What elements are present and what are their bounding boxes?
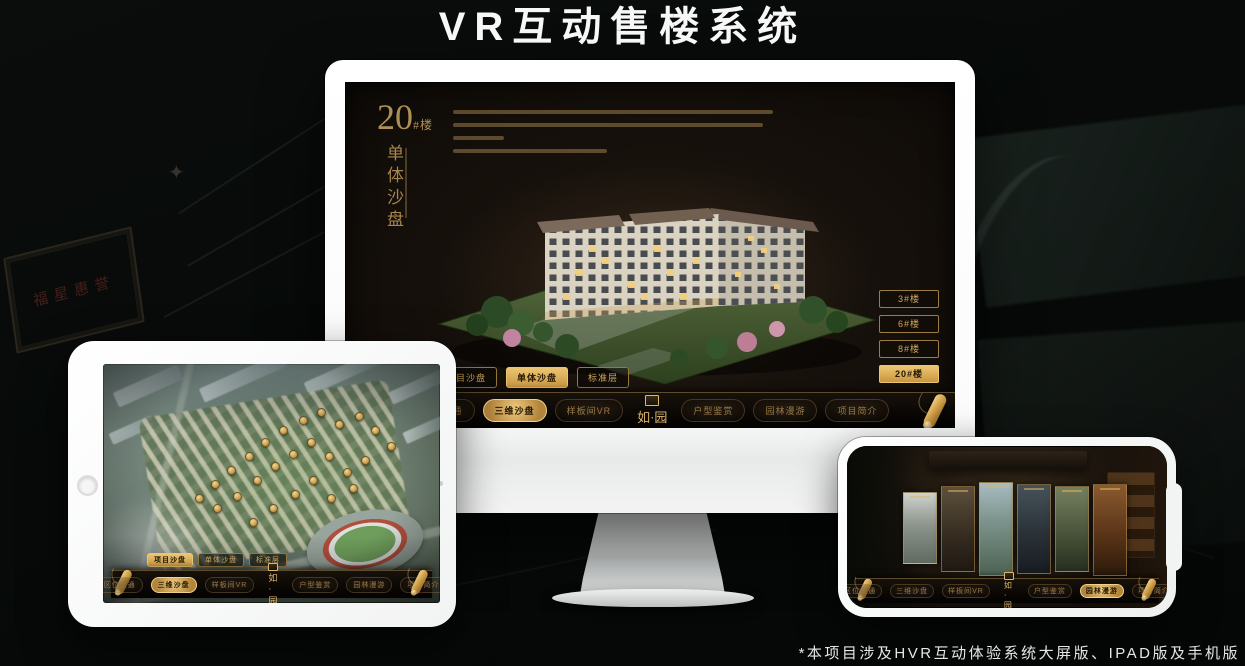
monitor-tab-2[interactable]: 单体沙盘	[506, 367, 568, 388]
logo-seal-icon	[268, 563, 278, 571]
phone-nav-bar: 区位交通三维沙盘样板间VR如·园户型鉴赏园林漫游项目简介	[855, 578, 1159, 603]
block-number: 20#楼	[377, 98, 433, 144]
nav-item-5[interactable]: 园林漫游	[753, 399, 817, 422]
logo-text: 如·园	[1004, 580, 1014, 609]
building-button-2[interactable]: 6#楼	[879, 315, 939, 333]
phone-notch	[1166, 483, 1182, 571]
scroll-icon[interactable]	[922, 392, 949, 428]
nav-item-1[interactable]: 区位交通	[103, 577, 143, 593]
monitor-base	[552, 589, 754, 607]
nav-item-4[interactable]: 户型鉴赏	[1028, 584, 1072, 598]
nav-items: 区位交通三维沙盘样板间VR如·园户型鉴赏园林漫游项目简介	[103, 563, 440, 604]
nav-item-4[interactable]: 户型鉴赏	[292, 577, 338, 593]
logo-text: 如·园	[637, 407, 667, 426]
logo-seal-icon	[645, 395, 659, 406]
building-button-3[interactable]: 8#楼	[879, 340, 939, 358]
nav-item-5[interactable]: 园林漫游	[1080, 584, 1124, 598]
bg-plaque-text: 福星惠誉	[32, 269, 116, 310]
nav-items: 区位交通三维沙盘样板间VR如·园户型鉴赏园林漫游项目简介	[411, 395, 890, 426]
nav-item-2[interactable]: 三维沙盘	[890, 584, 934, 598]
stage: ✦ 福星惠誉 VR互动售楼系统 *本项目涉及HVR互动体验系统大屏版、IPAD版…	[0, 0, 1245, 666]
nav-item-3[interactable]: 样板间VR	[942, 584, 990, 598]
monitor-tab-3[interactable]: 标准层	[577, 367, 629, 388]
nav-item-1[interactable]: 区位交通	[847, 584, 882, 598]
block-subtitle: 单体沙盘	[381, 144, 406, 232]
subtitle-rule	[405, 148, 407, 218]
footnote: *本项目涉及HVR互动体验系统大屏版、IPAD版及手机版	[799, 642, 1240, 663]
nav-item-6[interactable]: 项目简介	[825, 399, 889, 422]
bg-compass-icon: ✦	[168, 160, 185, 185]
page-title: VR互动售楼系统	[0, 0, 1245, 56]
gallery-panel[interactable]	[1017, 484, 1051, 574]
nav-items: 区位交通三维沙盘样板间VR如·园户型鉴赏园林漫游项目简介	[847, 572, 1167, 609]
tablet-nav-bar: 区位交通三维沙盘样板间VR如·园户型鉴赏园林漫游项目简介	[111, 570, 432, 598]
building-button-4[interactable]: 20#楼	[879, 365, 939, 383]
building-3d-render[interactable]	[417, 152, 887, 387]
phone-screen: 区位交通三维沙盘样板间VR如·园户型鉴赏园林漫游项目简介	[847, 446, 1167, 608]
logo-seal-icon	[1004, 572, 1014, 580]
nav-item-4[interactable]: 户型鉴赏	[681, 399, 745, 422]
building-button-1[interactable]: 3#楼	[879, 290, 939, 308]
nav-item-3[interactable]: 样板间VR	[555, 399, 624, 422]
gallery-panel[interactable]	[979, 482, 1013, 576]
monitor-tab-group: 项目沙盘单体沙盘标准层	[435, 367, 638, 388]
gallery-panel[interactable]	[1055, 486, 1089, 572]
monitor-stand	[580, 511, 725, 595]
bg-plaque: 福星惠誉	[3, 226, 145, 354]
ruyuan-logo[interactable]: 如·园	[268, 563, 278, 604]
nav-item-5[interactable]: 园林漫游	[346, 577, 392, 593]
tablet-device: 项目沙盘单体沙盘标准层 区位交通三维沙盘样板间VR如·园户型鉴赏园林漫游项目简介	[68, 341, 456, 627]
interior-pavilion-roof	[929, 451, 1087, 469]
nav-item-2[interactable]: 三维沙盘	[483, 399, 547, 422]
logo-text: 如·园	[268, 571, 278, 604]
tablet-home-button[interactable]	[77, 475, 98, 496]
nav-item-3[interactable]: 样板间VR	[205, 577, 255, 593]
nav-item-2[interactable]: 三维沙盘	[151, 577, 197, 593]
gallery-panel[interactable]	[903, 492, 937, 564]
phone-device: 区位交通三维沙盘样板间VR如·园户型鉴赏园林漫游项目简介	[838, 437, 1176, 617]
tablet-screen: 项目沙盘单体沙盘标准层 区位交通三维沙盘样板间VR如·园户型鉴赏园林漫游项目简介	[103, 364, 440, 603]
gallery-panel[interactable]	[1093, 484, 1127, 576]
building-button-group: 3#楼6#楼8#楼20#楼	[879, 290, 939, 383]
ruyuan-logo[interactable]: 如·园	[1004, 572, 1014, 609]
gallery-panel[interactable]	[941, 486, 975, 572]
ruyuan-logo[interactable]: 如·园	[637, 395, 667, 426]
